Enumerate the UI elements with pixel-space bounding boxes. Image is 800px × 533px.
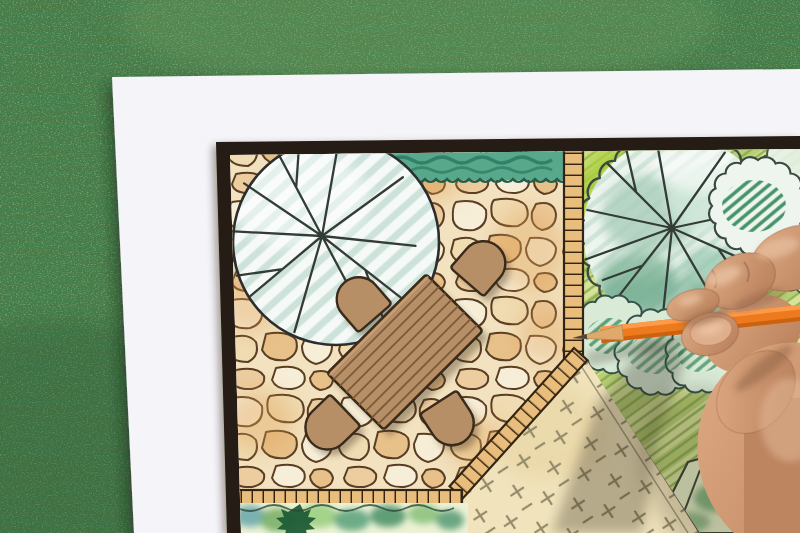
tile-edge-vertical: [564, 150, 583, 360]
photo-scene: [0, 0, 800, 533]
planting-strip: [234, 503, 468, 533]
tile-edge-horizontal: [234, 490, 462, 505]
photo-canvas: [0, 0, 800, 533]
